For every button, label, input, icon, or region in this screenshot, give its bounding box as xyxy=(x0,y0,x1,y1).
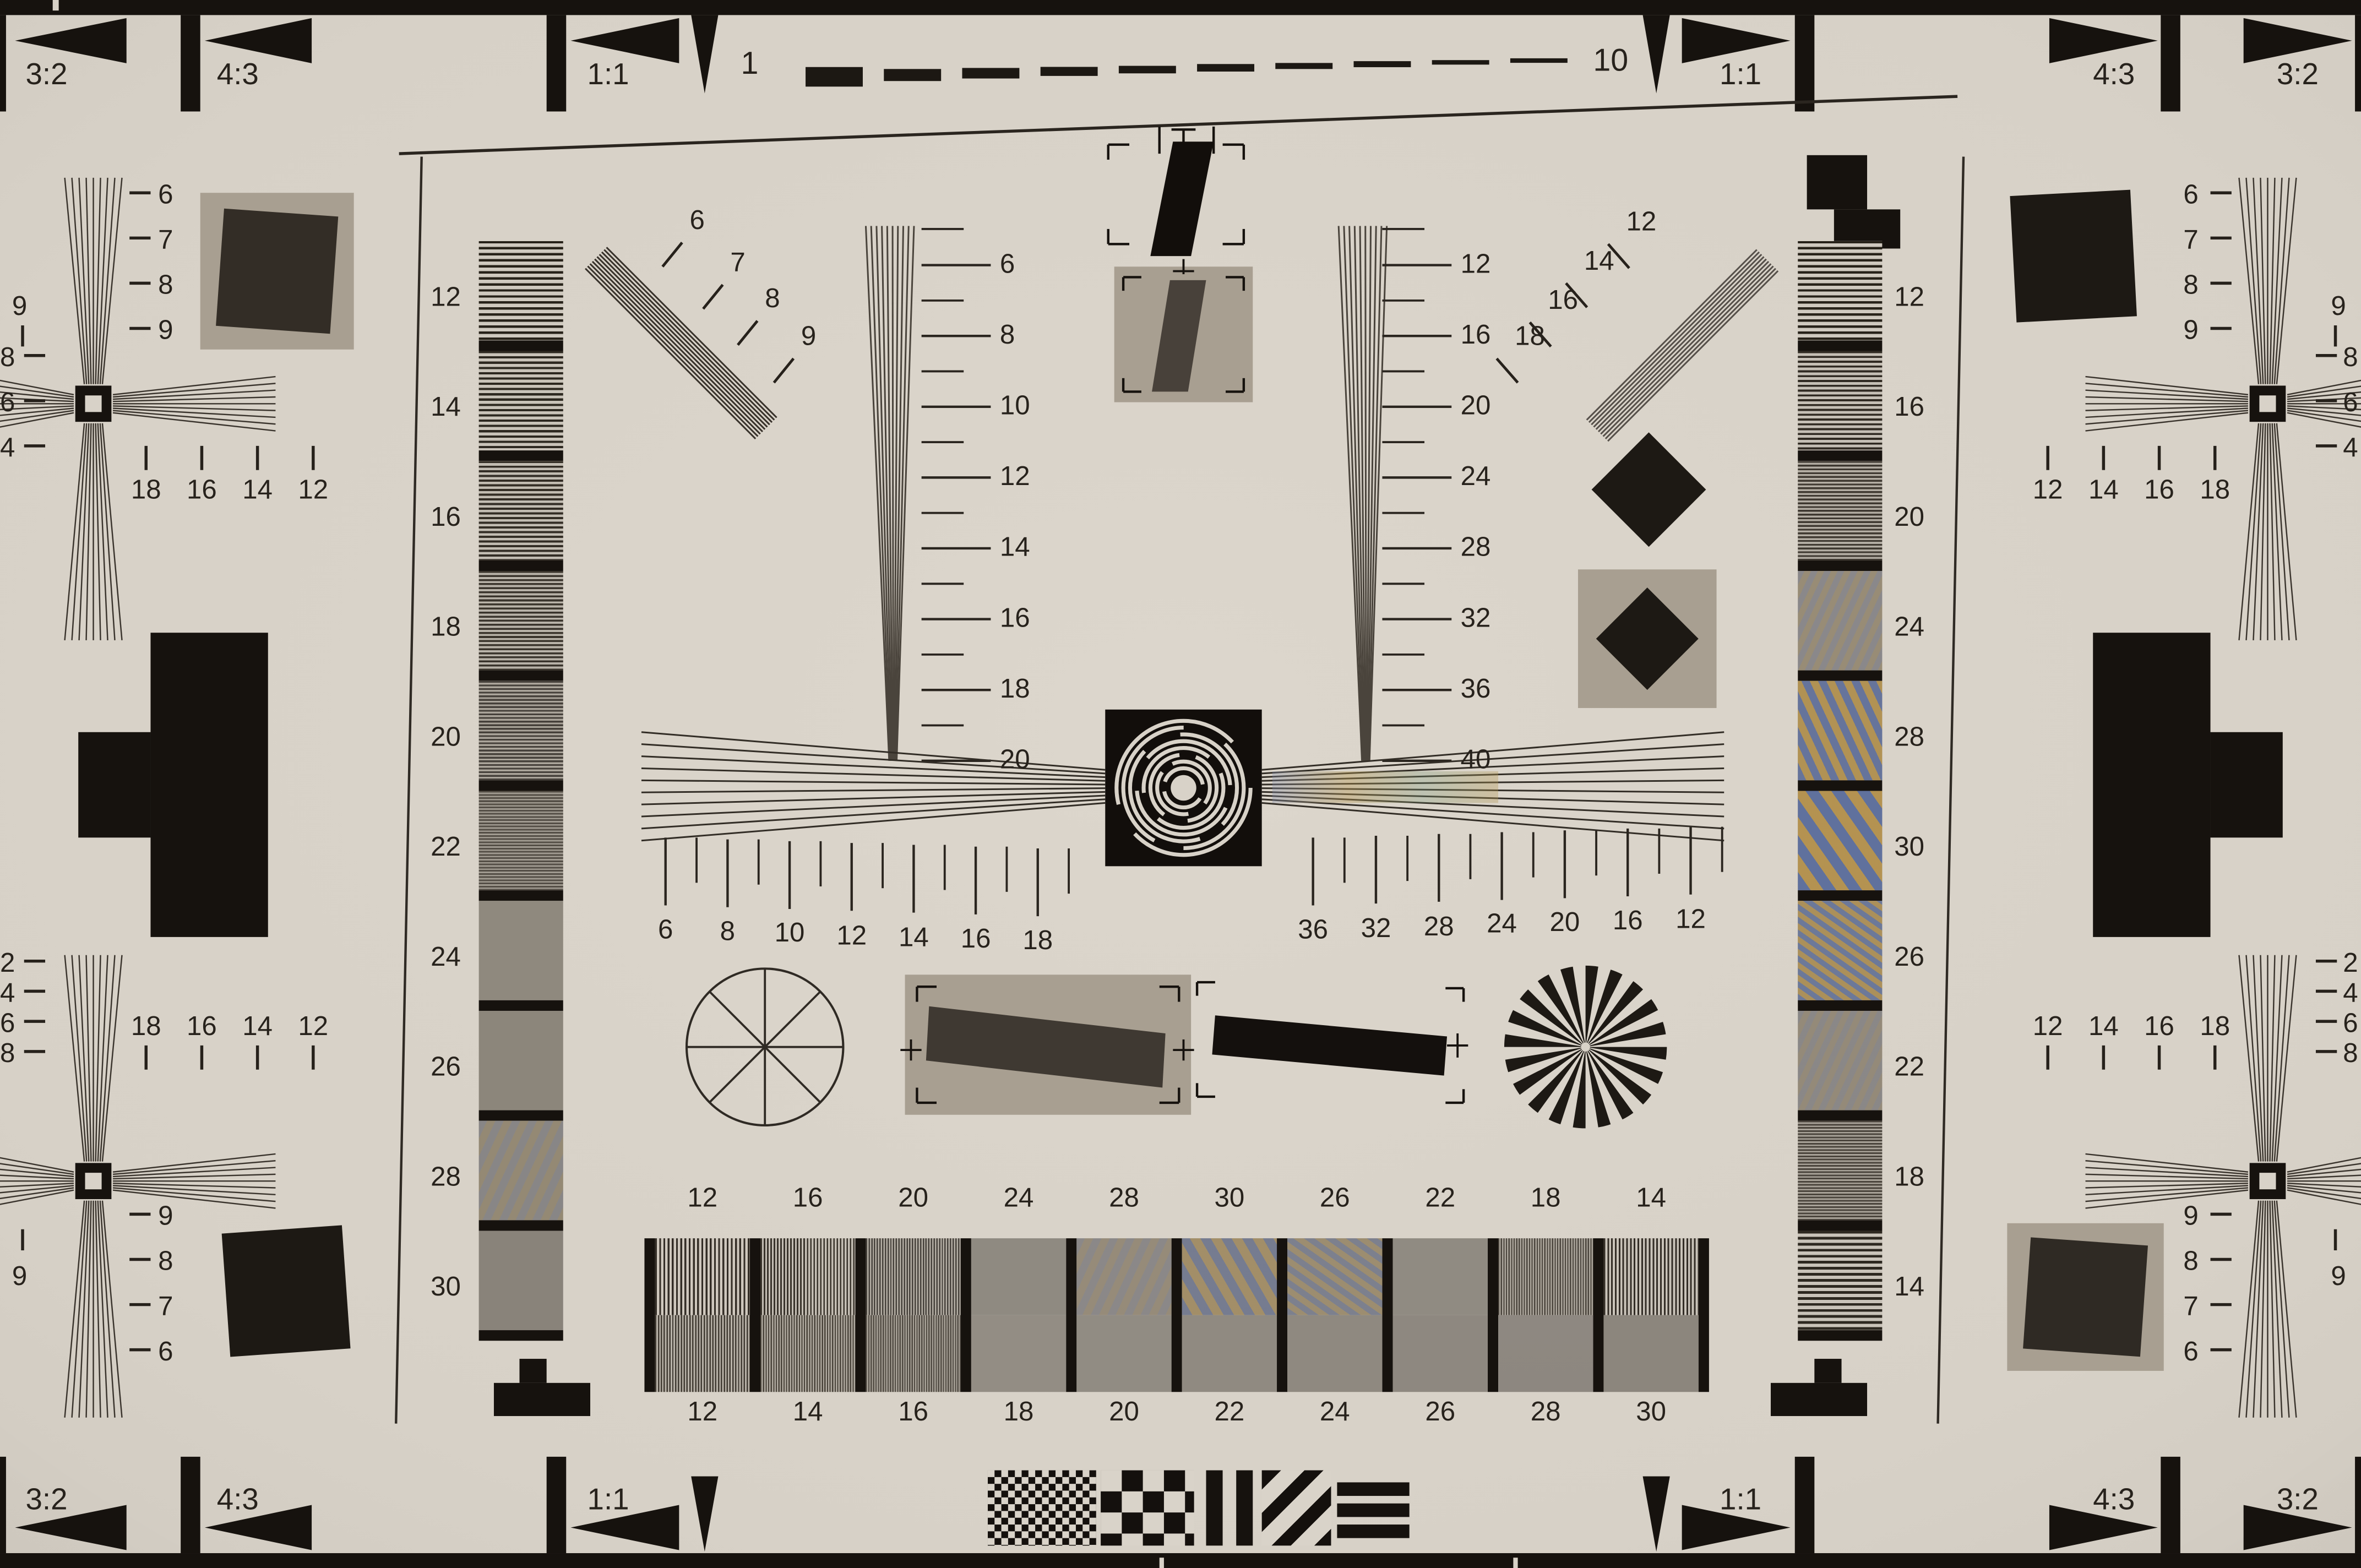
left-strip-divider xyxy=(479,560,563,571)
cluster-edge-label: 8 xyxy=(0,1039,15,1066)
left-strip-block xyxy=(479,791,563,891)
diag-fan-label: 18 xyxy=(1515,323,1545,350)
bottom-bars-bottom-block xyxy=(1498,1315,1593,1392)
bottom-bars-bottom-label: 24 xyxy=(1320,1398,1350,1425)
bottom-bars-bottom-block xyxy=(971,1315,1066,1392)
right-strip-block xyxy=(1798,681,1882,781)
cluster-row-label: 16 xyxy=(187,476,217,503)
bottom-bars-bottom-block xyxy=(1076,1315,1171,1392)
left-strip-block xyxy=(479,1011,563,1110)
left-strip-divider xyxy=(479,890,563,901)
wedge-scale-label: 12 xyxy=(1461,250,1491,277)
cluster-row-label: 12 xyxy=(298,476,328,503)
right-strip-divider xyxy=(1798,1000,1882,1011)
bottom-bars-top-label: 30 xyxy=(1214,1184,1244,1211)
moire-tint-overlay xyxy=(1272,771,1498,803)
cluster-row-label: 18 xyxy=(2200,1012,2230,1039)
wedge-scale-label: 14 xyxy=(1000,533,1030,560)
aspect-label-4-3: 4:3 xyxy=(2093,1485,2135,1516)
bottom-bars-bottom-label: 20 xyxy=(1109,1398,1139,1425)
left-strip-block xyxy=(479,681,563,781)
coarse-checkerboard xyxy=(1101,1471,1194,1546)
cluster-row-label: 14 xyxy=(242,1012,273,1039)
right-strip-block xyxy=(1798,461,1882,560)
right-strip-label: 14 xyxy=(1894,1273,1924,1300)
left-strip-divider xyxy=(479,1000,563,1011)
cluster-row-label: 14 xyxy=(2088,476,2119,503)
bottom-bars-bottom-label: 16 xyxy=(898,1398,928,1425)
diag-fan-label: 6 xyxy=(689,206,704,233)
h-scale-label: 14 xyxy=(899,923,929,950)
cluster-edge-label: 4 xyxy=(2343,979,2358,1006)
left-strip-label: 16 xyxy=(431,503,461,530)
wedge-scale-label: 16 xyxy=(1461,321,1491,348)
right-strip-label: 22 xyxy=(1894,1053,1924,1080)
aspect-label-1-1: 1:1 xyxy=(587,60,629,90)
cluster-col-label: 9 xyxy=(2183,317,2198,344)
left-strip-label: 28 xyxy=(431,1163,461,1190)
h-scale-label: 6 xyxy=(658,916,673,943)
bottom-bars-bottom-label: 28 xyxy=(1531,1398,1561,1425)
cluster-col-label: 9 xyxy=(158,1202,173,1229)
bottom-bars-top-label: 28 xyxy=(1109,1184,1139,1211)
cluster-edge-label: 2 xyxy=(2343,949,2358,976)
cluster-row-label: 16 xyxy=(187,1012,217,1039)
bottom-bars-bottom-label: 18 xyxy=(1004,1398,1034,1425)
left-strip-block xyxy=(479,901,563,1000)
right-strip-label: 16 xyxy=(1894,393,1924,420)
cluster-col-label: 6 xyxy=(158,181,173,208)
right-strip-divider xyxy=(1798,1330,1882,1341)
aspect-label-3-2: 3:2 xyxy=(2277,1485,2319,1516)
bottom-bars-top-block xyxy=(1182,1238,1277,1315)
cluster-edge-label: 2 xyxy=(0,949,15,976)
wedge-scale-label: 36 xyxy=(1461,675,1491,702)
cluster-row-label: 16 xyxy=(2144,476,2174,503)
aspect-label-3-2: 3:2 xyxy=(2277,60,2319,90)
bottom-bars-bottom-block xyxy=(866,1315,960,1392)
cluster-col-label: 6 xyxy=(2183,181,2198,208)
bottom-bars-top-block xyxy=(760,1238,855,1315)
right-strip-divider xyxy=(1798,1220,1882,1231)
right-strip-divider xyxy=(1798,560,1882,571)
cluster-col-label: 7 xyxy=(158,1293,173,1320)
left-strip-label: 30 xyxy=(431,1273,461,1300)
bottom-bars-bottom-label: 14 xyxy=(793,1398,823,1425)
wedge-scale-label: 12 xyxy=(1000,462,1030,489)
right-strip-label: 12 xyxy=(1894,283,1924,310)
bottom-bars-bottom-block xyxy=(655,1315,750,1392)
cluster-row-label: 18 xyxy=(2200,476,2230,503)
wedge-scale-label: 6 xyxy=(1000,250,1015,277)
right-strip-divider xyxy=(1798,340,1882,351)
bottom-bars-top-block xyxy=(971,1238,1066,1315)
h-scale-label: 24 xyxy=(1487,911,1517,938)
aspect-label-3-2: 3:2 xyxy=(25,1485,67,1516)
bottom-bars-top-block xyxy=(1076,1238,1171,1315)
right-strip-block xyxy=(1798,1121,1882,1221)
left-strip-divider xyxy=(479,1110,563,1121)
left-strip-block xyxy=(479,571,563,671)
ruler-start-label: 1 xyxy=(741,48,758,80)
diag-fan-label: 9 xyxy=(801,323,816,350)
wedge-scale-label: 8 xyxy=(1000,321,1015,348)
aspect-label-1-1: 1:1 xyxy=(587,1485,629,1516)
left-strip-divider xyxy=(479,1330,563,1341)
cluster-edge-label: 6 xyxy=(2343,389,2358,416)
cluster-row-label: 14 xyxy=(242,476,273,503)
cluster-col-label: 8 xyxy=(2183,271,2198,298)
bottom-bars-bottom-label: 22 xyxy=(1214,1398,1244,1425)
h-scale-label: 8 xyxy=(720,918,735,945)
diagonal-stripes xyxy=(1262,1471,1331,1546)
ruler-end-label: 10 xyxy=(1593,45,1628,77)
left-strip-divider xyxy=(479,780,563,791)
wedge-scale-label: 20 xyxy=(1461,391,1491,418)
cluster-edge-label: 4 xyxy=(0,434,15,461)
bottom-bars-top-label: 22 xyxy=(1425,1184,1455,1211)
right-strip-block xyxy=(1798,571,1882,671)
cluster-col-label: 9 xyxy=(158,317,173,344)
cluster-row-label: 14 xyxy=(2088,1012,2119,1039)
bottom-bars-top-label: 12 xyxy=(687,1184,717,1211)
bottom-bars-top-block xyxy=(1603,1238,1698,1315)
cluster-col-label: 8 xyxy=(2183,1248,2198,1275)
bottom-bars-bottom-block xyxy=(1182,1315,1277,1392)
cluster-lone-label: 9 xyxy=(12,292,27,319)
h-scale-label: 18 xyxy=(1022,927,1053,954)
right-strip-divider xyxy=(1798,671,1882,681)
wedge-scale-label: 18 xyxy=(1000,675,1030,702)
chart-labels-layer: 3:24:31:11:14:33:23:24:31:11:14:33:21101… xyxy=(0,0,2361,1568)
cluster-col-label: 8 xyxy=(158,271,173,298)
left-strip-label: 26 xyxy=(431,1053,461,1080)
right-strip-label: 18 xyxy=(1894,1163,1924,1190)
cluster-edge-label: 4 xyxy=(2343,434,2358,461)
right-strip-block xyxy=(1798,1011,1882,1110)
left-strip-divider xyxy=(479,1220,563,1231)
cluster-row-label: 12 xyxy=(2033,1012,2063,1039)
wedge-scale-label: 16 xyxy=(1000,604,1030,631)
diag-fan-label: 7 xyxy=(730,248,745,275)
wedge-scale-label: 32 xyxy=(1461,604,1491,631)
bottom-bars-top-label: 18 xyxy=(1531,1184,1561,1211)
cluster-lone-label: 9 xyxy=(12,1262,27,1289)
cluster-col-label: 7 xyxy=(2183,226,2198,253)
left-strip-block xyxy=(479,1231,563,1330)
h-scale-label: 20 xyxy=(1549,908,1580,935)
cluster-col-label: 9 xyxy=(2183,1202,2198,1229)
bottom-bars-top-block xyxy=(866,1238,960,1315)
bottom-bars-top-label: 14 xyxy=(1636,1184,1666,1211)
h-scale-label: 28 xyxy=(1424,912,1454,939)
cluster-lone-label: 9 xyxy=(2331,292,2346,319)
fine-checkerboard xyxy=(988,1471,1096,1546)
h-scale-label: 12 xyxy=(1675,905,1706,932)
left-strip-block xyxy=(479,351,563,451)
h-scale-label: 36 xyxy=(1298,916,1328,943)
cluster-row-label: 12 xyxy=(2033,476,2063,503)
right-strip-block xyxy=(1798,241,1882,341)
cluster-col-label: 7 xyxy=(2183,1293,2198,1320)
cluster-edge-label: 6 xyxy=(0,389,15,416)
right-strip-block xyxy=(1798,351,1882,451)
diag-fan-label: 8 xyxy=(765,285,780,312)
bottom-bars-bottom-block xyxy=(1393,1315,1488,1392)
bottom-bars-bottom-label: 30 xyxy=(1636,1398,1666,1425)
left-strip-label: 24 xyxy=(431,943,461,970)
right-strip-label: 24 xyxy=(1894,613,1924,640)
right-strip-label: 30 xyxy=(1894,833,1924,860)
cluster-edge-label: 8 xyxy=(0,344,15,371)
h-scale-label: 10 xyxy=(775,919,805,946)
left-strip-label: 18 xyxy=(431,613,461,640)
cluster-col-label: 6 xyxy=(2183,1338,2198,1365)
h-scale-label: 16 xyxy=(961,925,991,952)
left-strip-label: 22 xyxy=(431,833,461,860)
left-strip-divider xyxy=(479,450,563,461)
cluster-edge-label: 6 xyxy=(2343,1009,2358,1036)
aspect-label-4-3: 4:3 xyxy=(217,60,259,90)
bottom-bars-top-block xyxy=(1498,1238,1593,1315)
right-strip-divider xyxy=(1798,450,1882,461)
right-strip-divider xyxy=(1798,890,1882,901)
aspect-label-3-2: 3:2 xyxy=(25,60,67,90)
resolution-test-chart-photo: 3:24:31:11:14:33:23:24:31:11:14:33:21101… xyxy=(0,0,2361,1568)
right-strip-label: 28 xyxy=(1894,723,1924,750)
wedge-scale-label: 20 xyxy=(1000,745,1030,772)
left-strip-block xyxy=(479,461,563,560)
left-strip-block xyxy=(479,1121,563,1221)
cluster-edge-label: 8 xyxy=(2343,1039,2358,1066)
right-strip-label: 26 xyxy=(1894,943,1924,970)
diag-fan-label: 14 xyxy=(1584,247,1614,274)
bottom-bars-bottom-block xyxy=(1287,1315,1382,1392)
bottom-bars-top-label: 26 xyxy=(1320,1184,1350,1211)
cluster-lone-label: 9 xyxy=(2331,1262,2346,1289)
bottom-bars-bottom-label: 26 xyxy=(1425,1398,1455,1425)
cluster-edge-label: 8 xyxy=(2343,344,2358,371)
bottom-bars-top-block xyxy=(1287,1238,1382,1315)
aspect-label-4-3: 4:3 xyxy=(217,1485,259,1516)
left-strip xyxy=(479,241,563,1338)
h-scale-label: 16 xyxy=(1613,907,1643,934)
diag-fan-label: 12 xyxy=(1626,208,1656,235)
bottom-bars-top-label: 20 xyxy=(898,1184,928,1211)
wedge-scale-label: 40 xyxy=(1461,745,1491,772)
h-scale-label: 12 xyxy=(836,921,867,948)
right-strip-label: 20 xyxy=(1894,503,1924,530)
left-strip-block xyxy=(479,241,563,341)
right-strip-block xyxy=(1798,1231,1882,1330)
bottom-bars-top-label: 16 xyxy=(793,1184,823,1211)
aspect-label-1-1: 1:1 xyxy=(1720,1485,1761,1516)
cluster-col-label: 7 xyxy=(158,226,173,253)
right-strip-divider xyxy=(1798,780,1882,791)
wedge-scale-label: 24 xyxy=(1461,462,1491,489)
cluster-col-label: 8 xyxy=(158,1248,173,1275)
cluster-edge-label: 6 xyxy=(0,1009,15,1036)
bottom-bars-top-label: 24 xyxy=(1004,1184,1034,1211)
cluster-row-label: 12 xyxy=(298,1012,328,1039)
h-scale-label: 32 xyxy=(1361,914,1391,941)
cluster-row-label: 16 xyxy=(2144,1012,2174,1039)
left-strip-divider xyxy=(479,671,563,681)
bottom-bars-top-block xyxy=(655,1238,750,1315)
wedge-scale-label: 28 xyxy=(1461,533,1491,560)
cluster-edge-label: 4 xyxy=(0,979,15,1006)
aspect-label-1-1: 1:1 xyxy=(1720,60,1761,90)
right-strip-divider xyxy=(1798,1110,1882,1121)
cluster-row-label: 18 xyxy=(131,476,161,503)
right-strip-block xyxy=(1798,791,1882,891)
left-strip-label: 12 xyxy=(431,283,461,310)
cluster-row-label: 18 xyxy=(131,1012,161,1039)
right-strip-block xyxy=(1798,901,1882,1000)
right-strip xyxy=(1798,241,1882,1338)
left-strip-label: 14 xyxy=(431,393,461,420)
left-strip-divider xyxy=(479,340,563,351)
bottom-bars-top-block xyxy=(1393,1238,1488,1315)
wedge-scale-label: 10 xyxy=(1000,391,1030,418)
bottom-bars-bottom-block xyxy=(760,1315,855,1392)
left-strip-label: 20 xyxy=(431,723,461,750)
cluster-col-label: 6 xyxy=(158,1338,173,1365)
bottom-bars-bottom-block xyxy=(1603,1315,1698,1392)
bottom-bars-bottom-label: 12 xyxy=(687,1398,717,1425)
aspect-label-4-3: 4:3 xyxy=(2093,60,2135,90)
diag-fan-label: 16 xyxy=(1548,286,1578,313)
